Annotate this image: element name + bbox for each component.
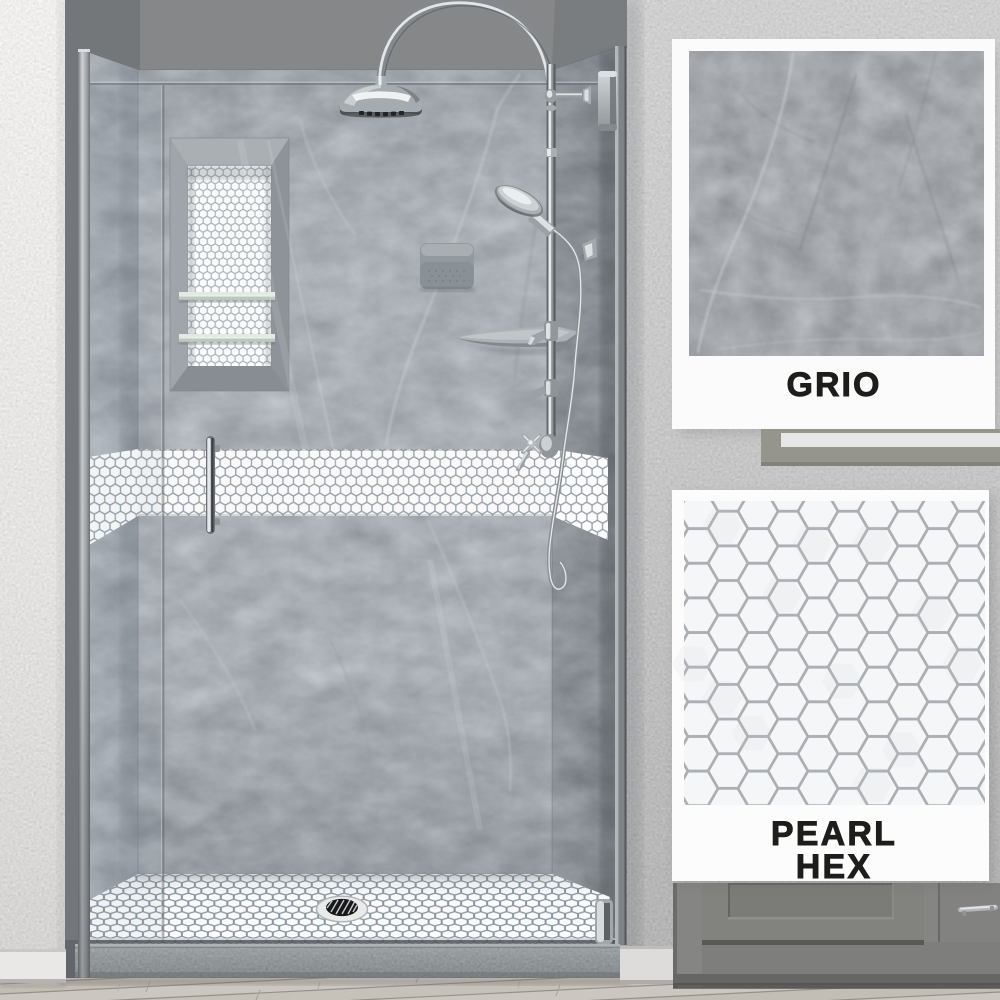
svg-text:HEX: HEX	[796, 848, 873, 886]
svg-text:GRIO: GRIO	[787, 366, 882, 404]
